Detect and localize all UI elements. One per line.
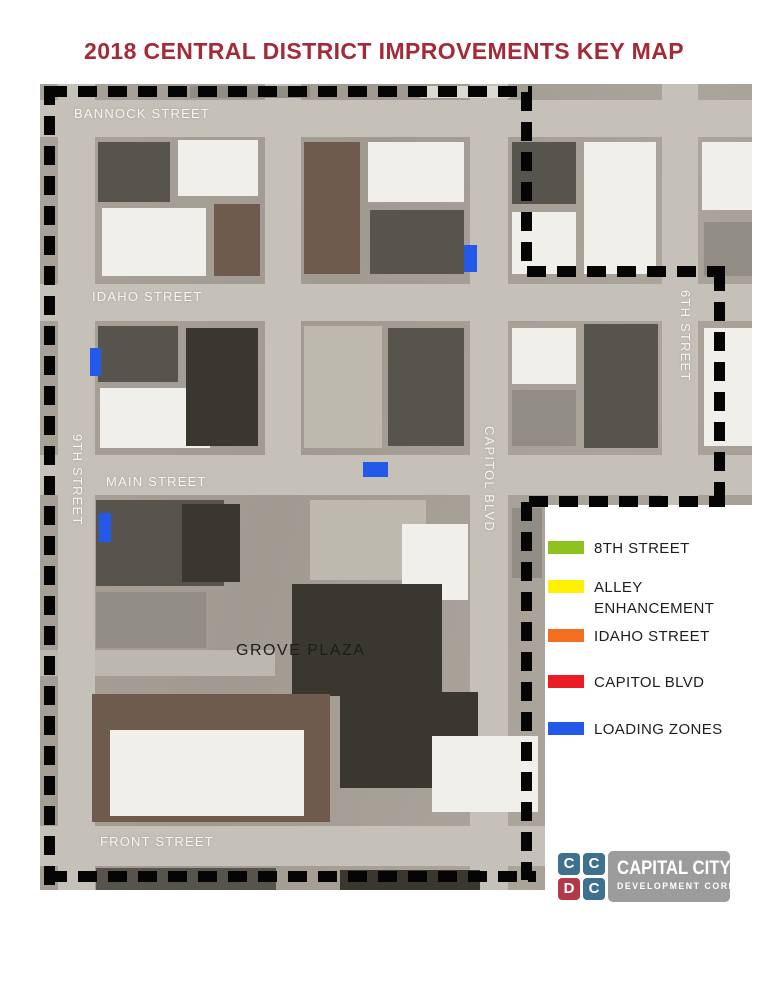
legend-label-loading-zones: LOADING ZONES	[594, 719, 744, 740]
legend-swatch-8th-street	[548, 541, 584, 554]
legend-swatch-loading-zones	[548, 722, 584, 735]
ccdc-logo-tiles: CCDC	[558, 853, 605, 900]
logo-tile-c: C	[558, 853, 580, 875]
legend-label-capitol-blvd: CAPITOL BLVD	[594, 672, 744, 693]
legend-label-alley-enhancement: ALLEY ENHANCEMENT	[594, 577, 744, 619]
logo-company-subtitle: DEVELOPMENT CORP	[617, 881, 736, 891]
legend-label-8th-street: 8TH STREET	[594, 538, 744, 559]
legend-swatch-alley-enhancement	[548, 580, 584, 593]
ccdc-logo: CCDC CAPITAL CITY DEVELOPMENT CORP	[558, 851, 734, 902]
legend: 8TH STREETALLEY ENHANCEMENTIDAHO STREETC…	[0, 0, 768, 994]
legend-label-idaho-street: IDAHO STREET	[594, 626, 744, 647]
ccdc-logo-plate: CAPITAL CITY DEVELOPMENT CORP	[608, 851, 730, 902]
logo-tile-c: C	[583, 853, 605, 875]
logo-tile-c: C	[583, 878, 605, 900]
logo-company-name: CAPITAL CITY	[617, 858, 731, 880]
legend-swatch-capitol-blvd	[548, 675, 584, 688]
legend-swatch-idaho-street	[548, 629, 584, 642]
logo-tile-d: D	[558, 878, 580, 900]
